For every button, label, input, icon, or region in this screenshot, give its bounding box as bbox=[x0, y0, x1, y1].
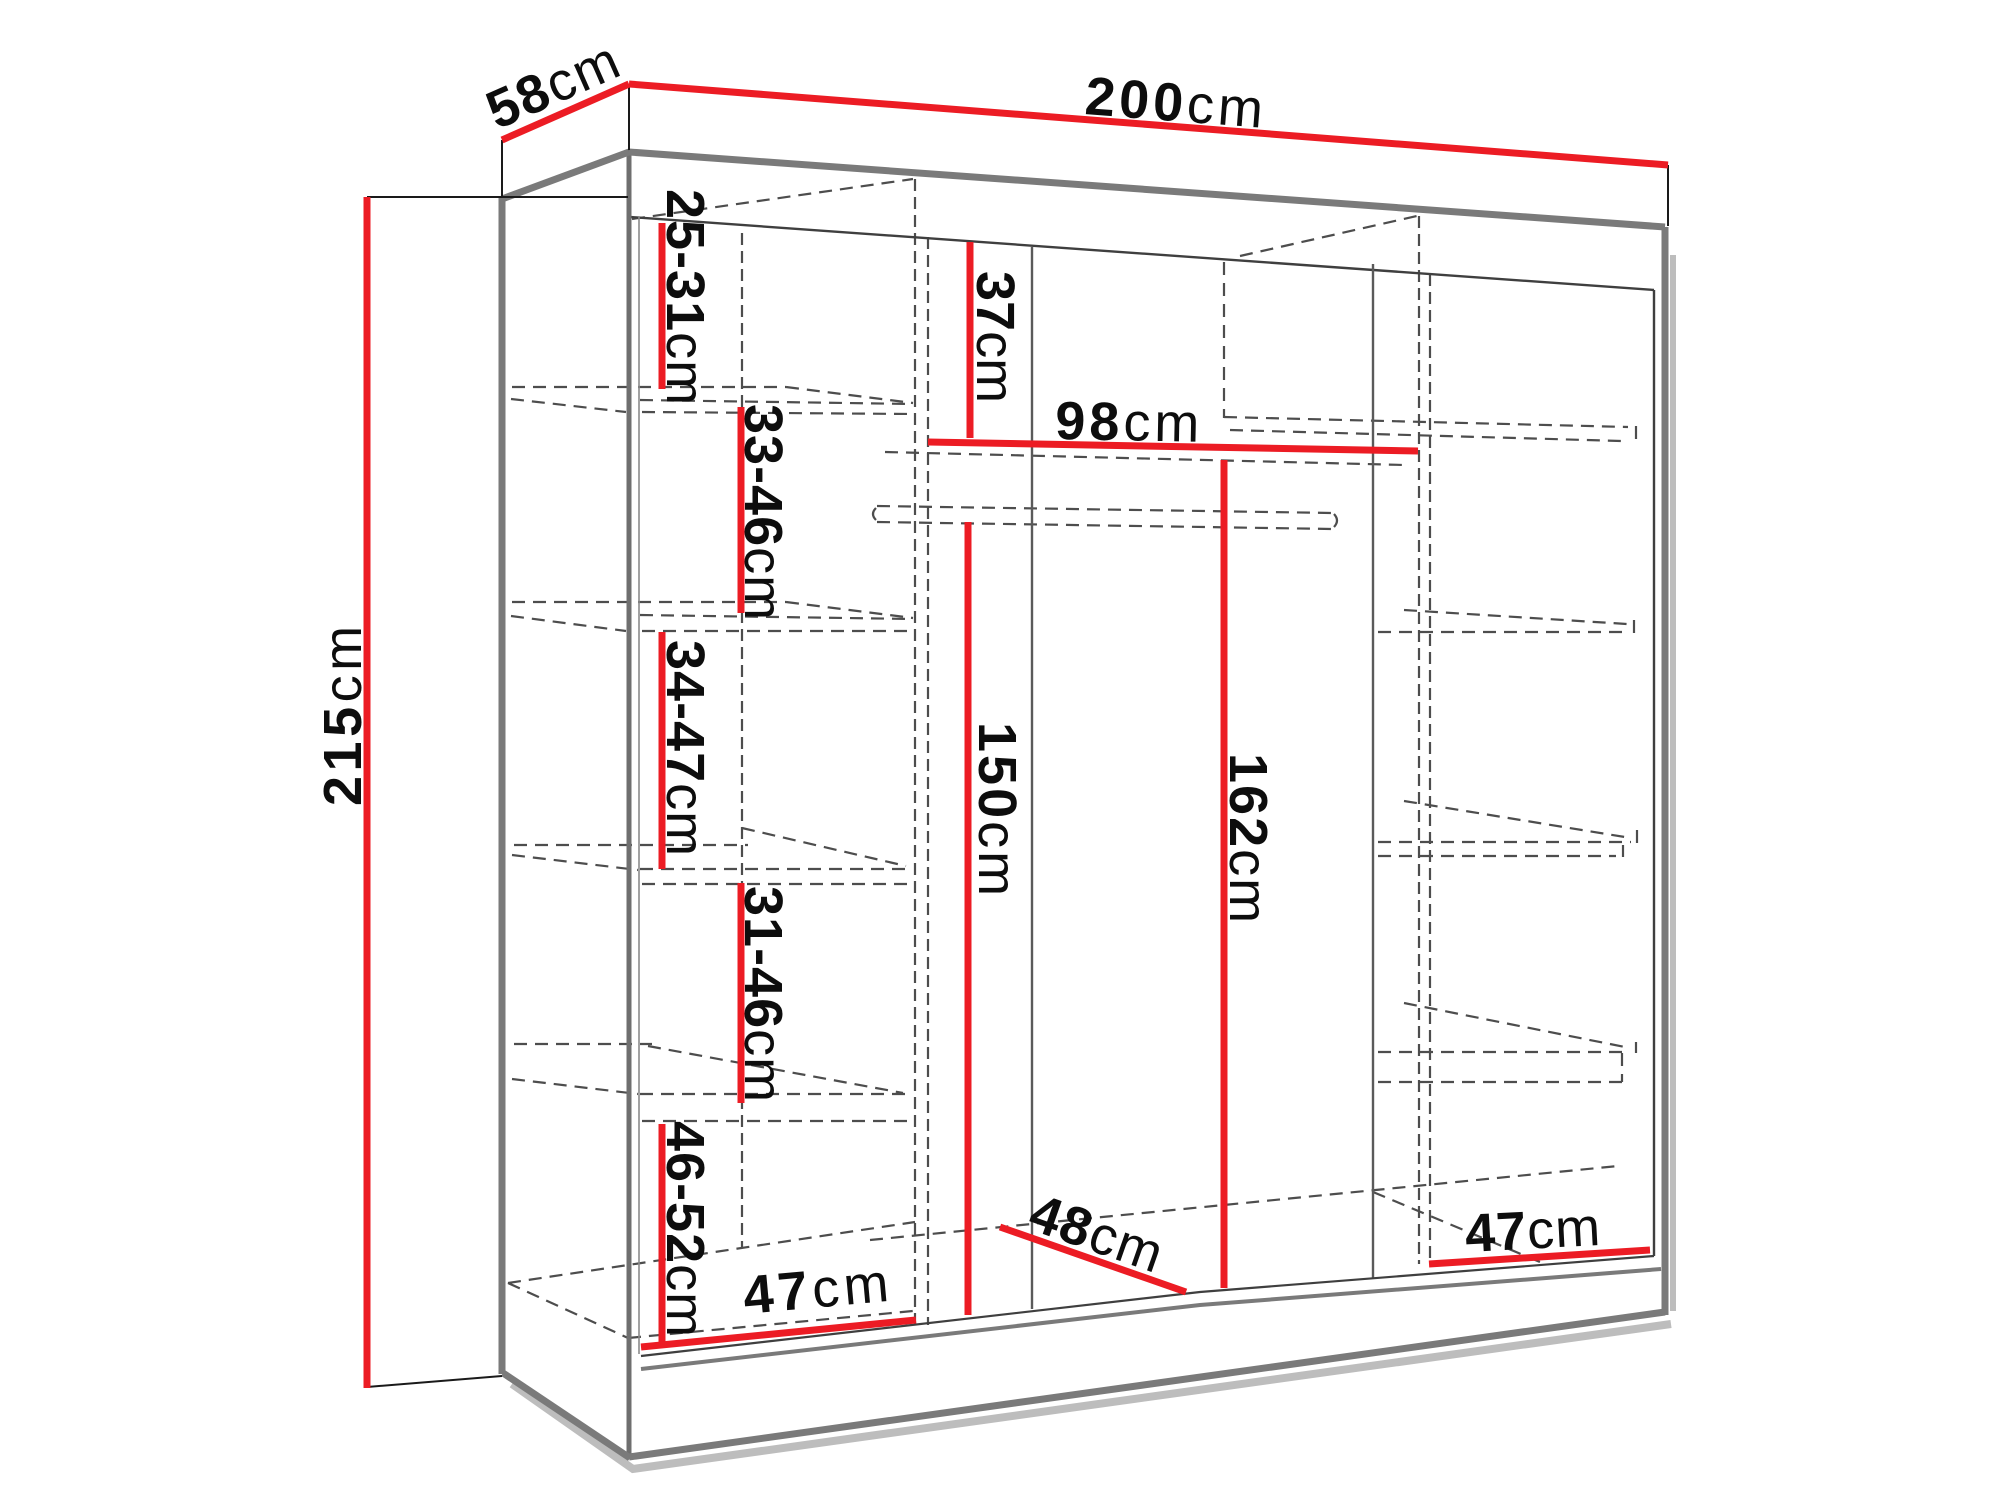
svg-text:34-47cm: 34-47cm bbox=[655, 640, 715, 857]
svg-text:25-31cm: 25-31cm bbox=[655, 189, 715, 406]
svg-text:31-46cm: 31-46cm bbox=[733, 886, 793, 1103]
svg-text:37cm: 37cm bbox=[965, 271, 1025, 403]
svg-text:47cm: 47cm bbox=[1463, 1197, 1602, 1264]
svg-text:33-46cm: 33-46cm bbox=[733, 404, 793, 621]
svg-text:162cm: 162cm bbox=[1218, 753, 1278, 925]
svg-text:46-52cm: 46-52cm bbox=[655, 1121, 715, 1338]
svg-text:150cm: 150cm bbox=[967, 722, 1027, 899]
svg-text:215cm: 215cm bbox=[313, 621, 373, 806]
svg-text:98cm: 98cm bbox=[1055, 391, 1204, 454]
